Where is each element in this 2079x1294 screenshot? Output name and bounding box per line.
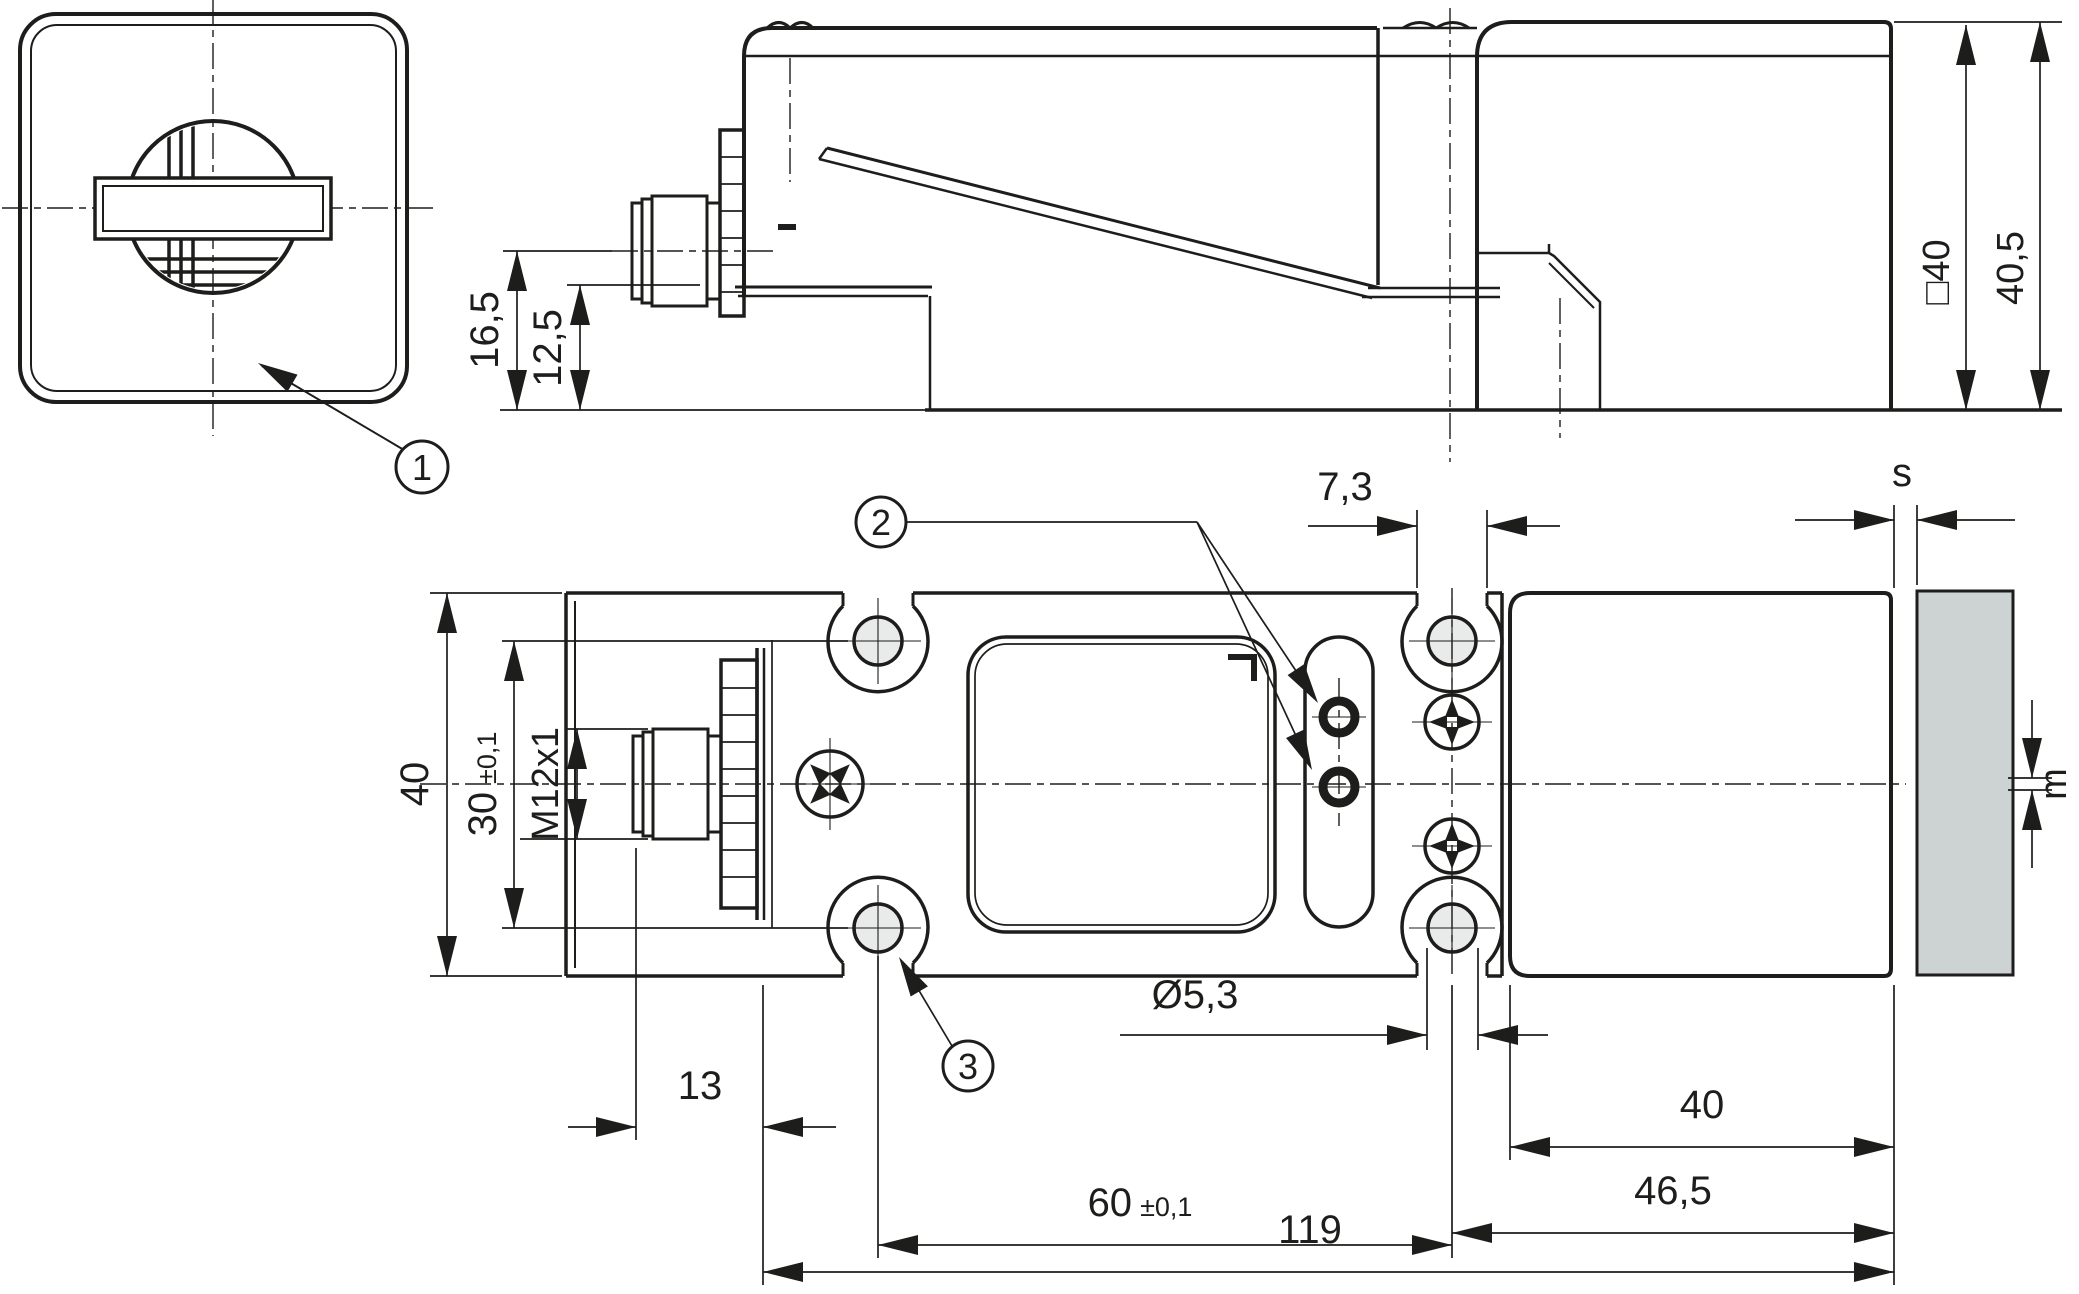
dim-5-3: Ø5,3 [1120, 948, 1548, 1050]
actuator-block [1917, 591, 2013, 975]
balloon-3-group: 3 [890, 952, 993, 1091]
label-corner-mark [1228, 657, 1254, 681]
side-head-outline [1477, 22, 1891, 410]
balloon-1-label: 1 [412, 447, 432, 488]
dim-46-5-label: 46,5 [1634, 1169, 1712, 1213]
side-housing-mark [778, 224, 796, 230]
dim-s: s [1795, 451, 2015, 588]
side-head-notch [1477, 244, 1600, 410]
head-screw-bottom [1412, 819, 1492, 873]
dim-40h-label: 40 [1680, 1083, 1725, 1127]
dim-m: m [2008, 700, 2075, 868]
dim-46-5: 46,5 [1452, 1169, 1894, 1243]
dim-7-3-label: 7,3 [1317, 465, 1373, 509]
side-lever-top [827, 148, 1380, 288]
dim-40-5-label: 40,5 [1990, 231, 2032, 305]
dim-40v-label: 40 [393, 762, 437, 807]
cover-screw-left [784, 738, 876, 830]
dim-60-label: 60±0,1 [1088, 1181, 1193, 1225]
dimension-drawing: EUCHNER 1 [0, 0, 2079, 1294]
dim-5-3-label: Ø5,3 [1152, 973, 1239, 1017]
side-connector [632, 130, 744, 316]
dim-16-5-label: 16,5 [463, 291, 507, 369]
drawing-root: EUCHNER 1 [2, 0, 2075, 1285]
dim-square40-label: □40 [1916, 239, 1958, 304]
balloon-2-label: 2 [871, 502, 891, 543]
plan-view: 2 3 7,3 s [393, 451, 2075, 1285]
side-head-notch-inner [1549, 263, 1594, 308]
dim-m12x1: M12x1 [520, 727, 648, 841]
side-lever-bottom [819, 159, 1372, 298]
head-screw-top [1412, 695, 1492, 749]
plan-boss-ribs [721, 688, 757, 877]
side-lever-end [819, 148, 827, 159]
dim-12-5-label: 12,5 [526, 309, 570, 387]
side-body-outline [744, 28, 1377, 295]
logo-text: EUCHNER [110, 188, 316, 230]
dim-119-label: 119 [1278, 1208, 1342, 1252]
dim-s-label: s [1892, 451, 1912, 495]
dim-7-3: 7,3 [1308, 465, 1560, 588]
dim-square40: □40 [1894, 22, 2062, 410]
dim-40-5: 40,5 [1990, 22, 2050, 410]
balloon-3-label: 3 [958, 1046, 978, 1087]
dim-13: 13 [568, 848, 836, 1285]
side-view: 16,5 12,5 □40 40,5 [463, 8, 2062, 462]
dim-13-label: 13 [678, 1064, 723, 1108]
front-view: EUCHNER 1 [2, 0, 448, 493]
dim-12-5: 12,5 [526, 285, 700, 410]
dim-16-5: 16,5 [463, 251, 527, 410]
balloon1-arrow [253, 354, 298, 392]
drawing-canvas: EUCHNER 1 [0, 0, 2079, 1294]
dim-m-label: m [2033, 768, 2075, 800]
dim-m12x1-label: M12x1 [525, 727, 567, 841]
dim-40-horizontal: 40 [1510, 985, 1894, 1285]
connector-boss-ribs [720, 157, 744, 292]
